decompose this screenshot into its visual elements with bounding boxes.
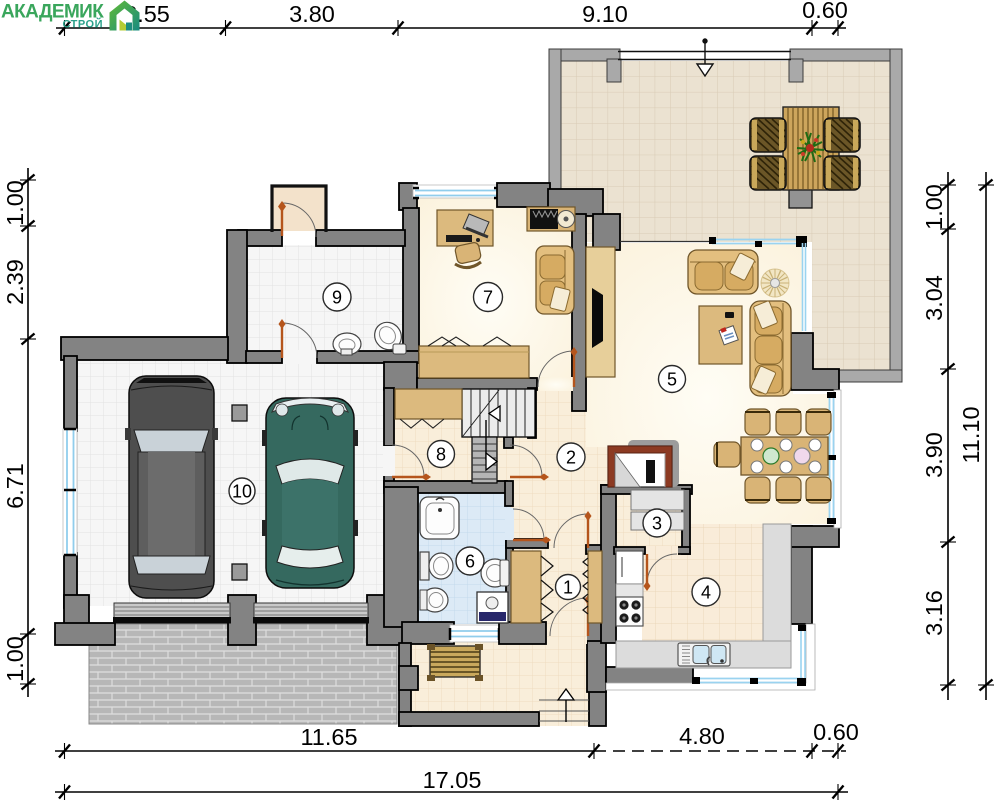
svg-text:10: 10 [232,482,252,502]
svg-text:0.60: 0.60 [813,719,859,745]
svg-text:1.00: 1.00 [2,180,28,226]
svg-text:6.71: 6.71 [2,463,28,509]
svg-text:11.10: 11.10 [958,406,984,463]
svg-text:4: 4 [701,583,711,603]
svg-text:2: 2 [566,448,576,468]
svg-text:СТРОЙ: СТРОЙ [62,18,103,31]
svg-text:3.90: 3.90 [921,432,947,478]
svg-text:9.10: 9.10 [582,1,628,27]
svg-text:1.00: 1.00 [2,636,28,682]
svg-text:2.39: 2.39 [2,259,28,305]
svg-text:3: 3 [652,514,662,534]
svg-text:3.16: 3.16 [921,590,947,636]
svg-text:1.00: 1.00 [921,184,947,230]
svg-text:9: 9 [332,288,342,308]
svg-text:17.05: 17.05 [423,767,482,793]
svg-text:11.65: 11.65 [300,724,357,750]
svg-text:6: 6 [465,552,475,572]
svg-text:8: 8 [436,445,446,465]
svg-text:0.60: 0.60 [802,0,848,23]
svg-text:5: 5 [667,370,677,390]
svg-text:1: 1 [563,578,573,598]
svg-text:7: 7 [483,288,493,308]
svg-text:3.04: 3.04 [921,275,947,321]
svg-text:3.80: 3.80 [289,1,335,27]
svg-text:4.80: 4.80 [679,723,725,749]
